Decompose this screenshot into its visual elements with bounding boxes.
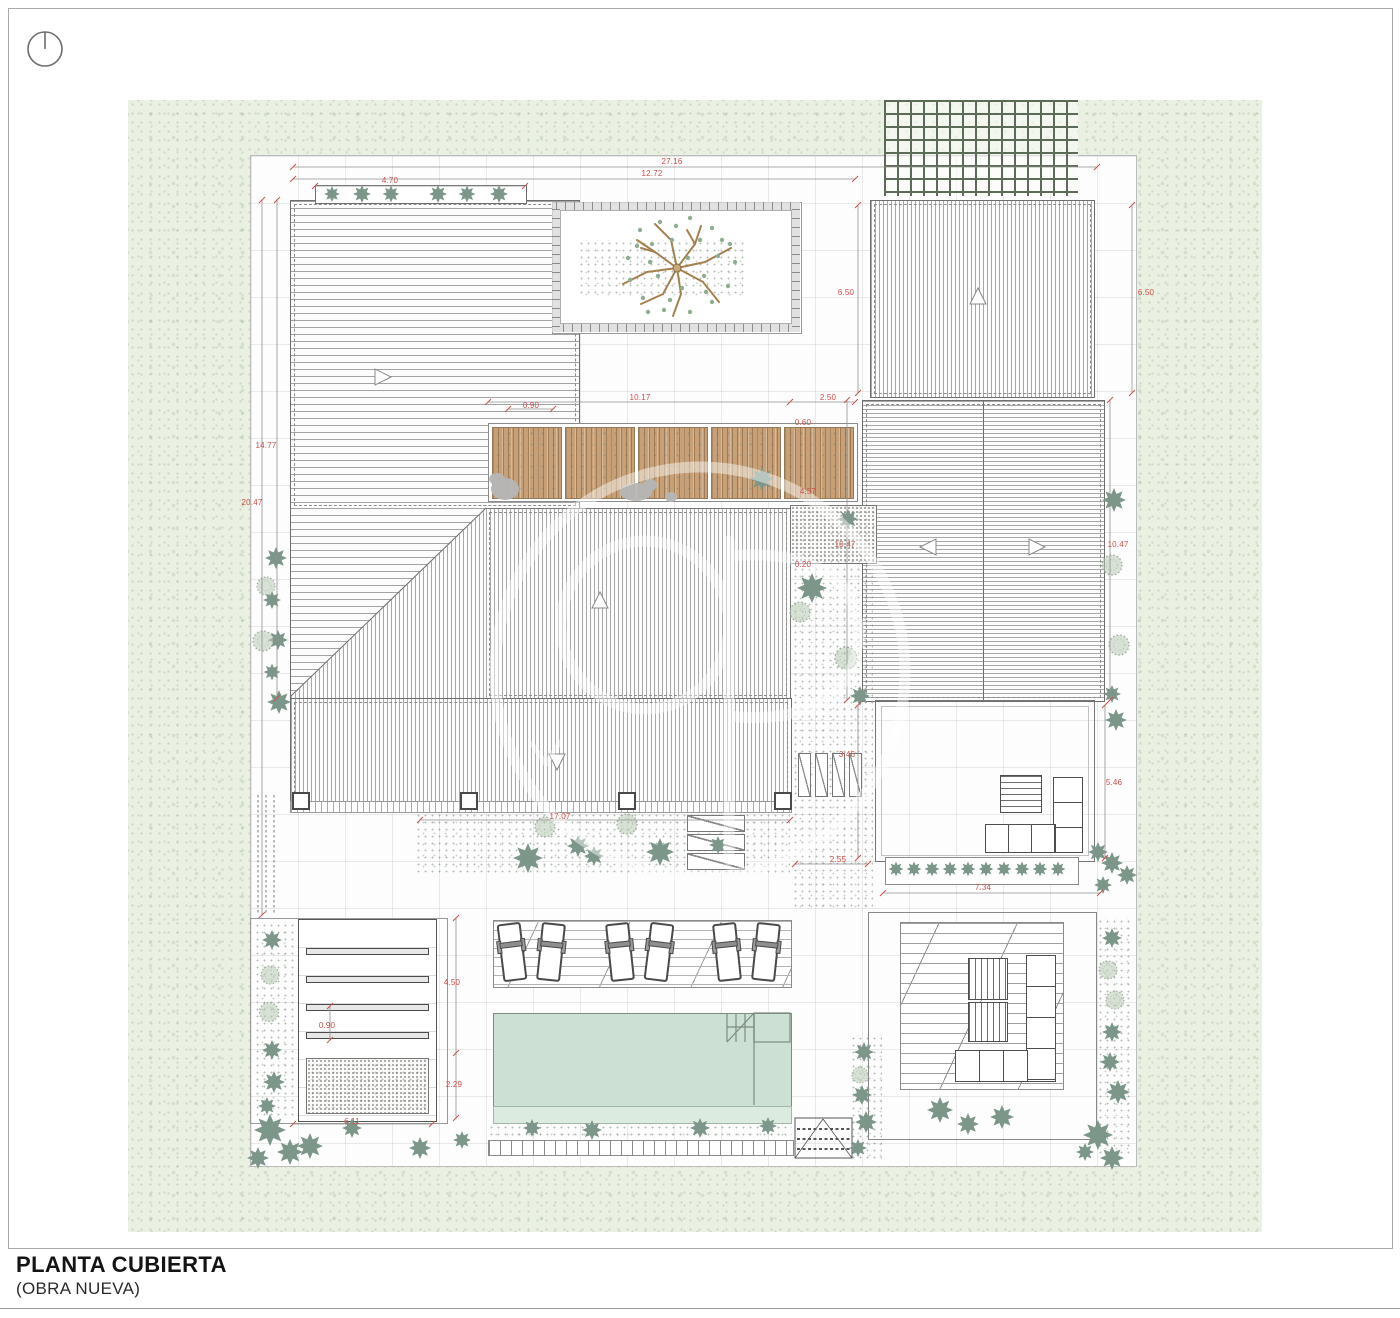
sheet-bottom-line <box>0 1308 1400 1309</box>
plan-title: PLANTA CUBIERTA <box>16 1252 227 1278</box>
drawing-frame <box>8 8 1393 1249</box>
title-block: PLANTA CUBIERTA (OBRA NUEVA) <box>16 1252 227 1299</box>
sheet: 27.16 12.72 4.70 6.50 6.50 14.77 20.47 0… <box>0 0 1400 1318</box>
plan-subtitle: (OBRA NUEVA) <box>16 1279 227 1299</box>
